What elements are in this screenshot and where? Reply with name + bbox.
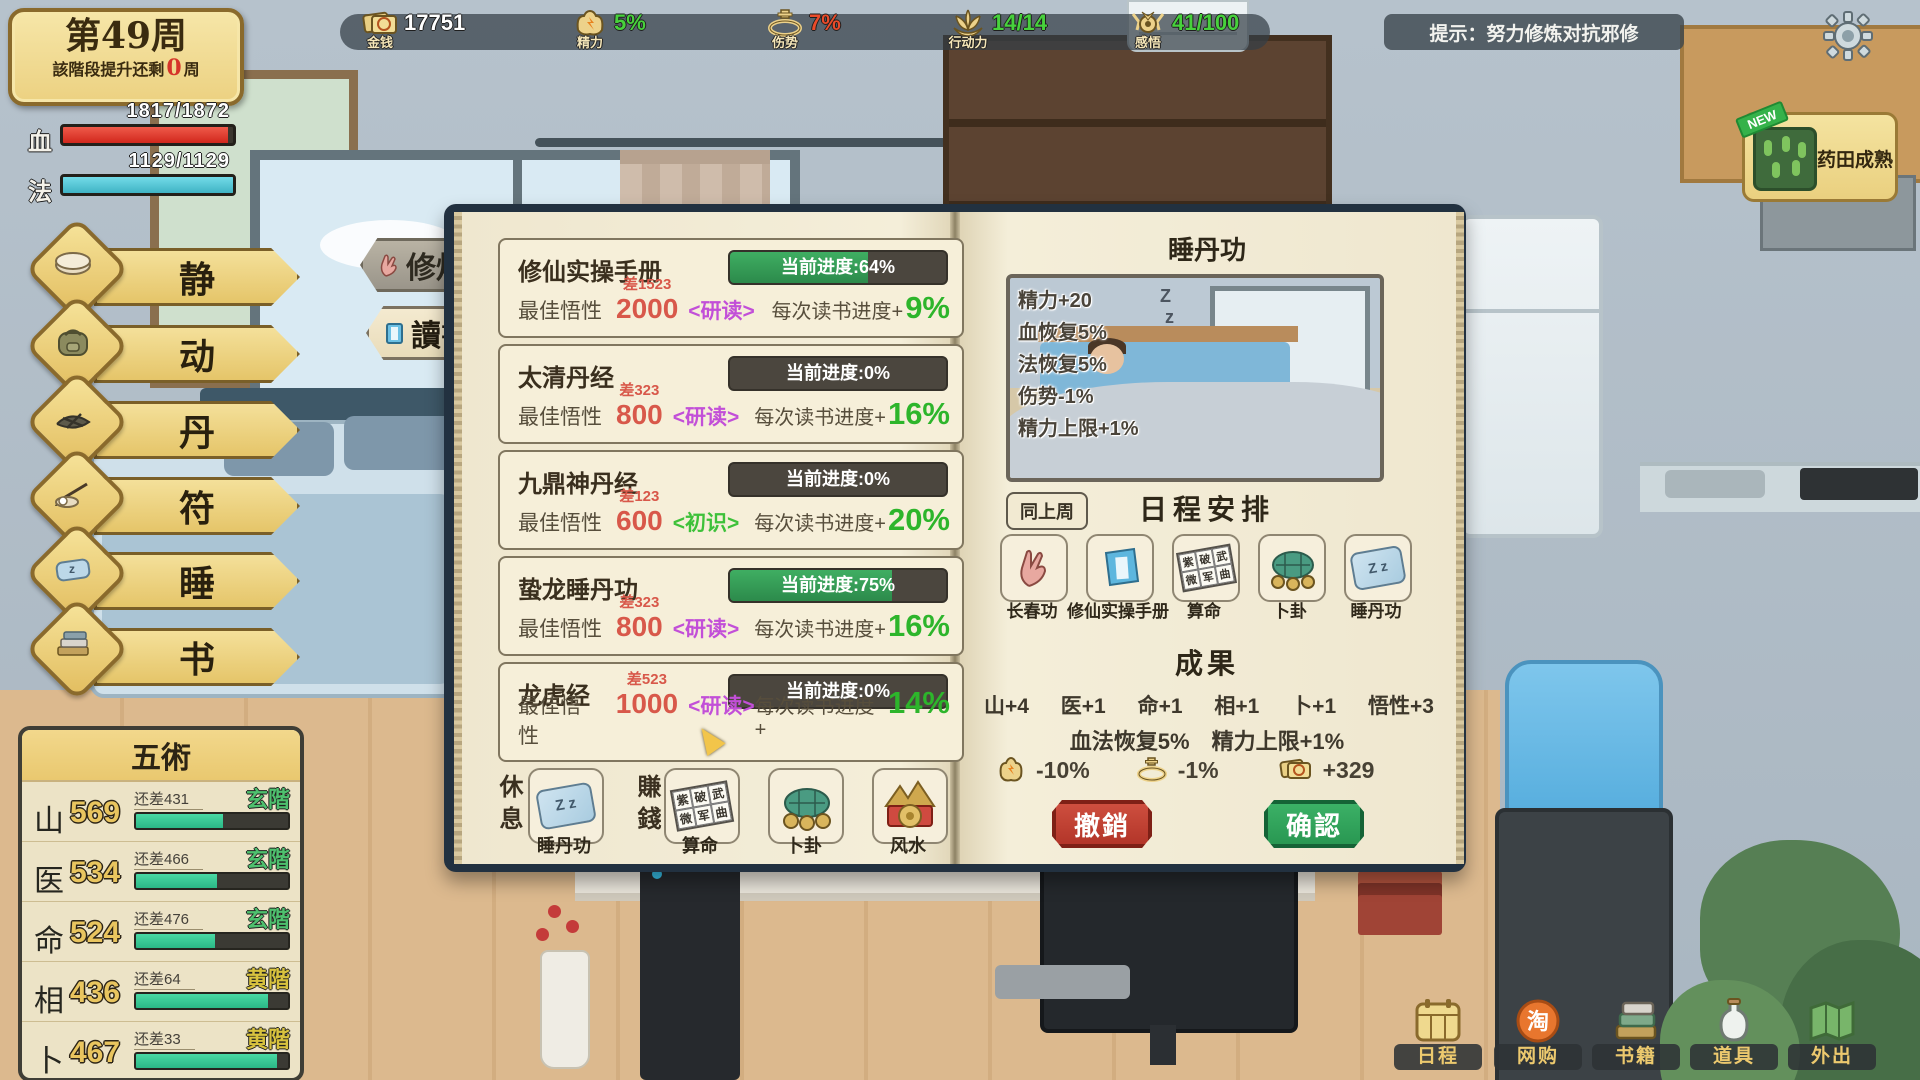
results-bonus: 血法恢复5% 精力上限+1%: [958, 724, 1456, 756]
activity-label: 风水: [853, 832, 963, 858]
stove: [1800, 468, 1918, 500]
keyboard: [995, 965, 1130, 999]
dock-items-button[interactable]: 道具: [1696, 1000, 1772, 1070]
gain-item: 医+1: [1061, 690, 1106, 720]
books-icon: [1610, 998, 1662, 1044]
cost-injury: -1%: [1178, 757, 1219, 784]
action-icon: 行动力: [948, 6, 988, 40]
hand-icon: [1017, 546, 1051, 590]
gain-value: 20%: [888, 502, 950, 538]
gain-label: 每次读书进度+: [754, 613, 886, 642]
herbs-icon: [50, 395, 96, 441]
gain-item: 卜+1: [1291, 690, 1336, 720]
svg-text:z: z: [69, 562, 75, 576]
book-entry[interactable]: 修仙实操手册 当前进度:64% 最佳悟性 差15232000 <研读> 每次读书…: [498, 238, 964, 338]
five-arts-row-divination: 卜 467 还差33 黄階: [22, 1022, 300, 1080]
aptitude-diff: 差1523: [623, 273, 671, 294]
five-arts-row-medicine: 医 534 还差466 玄階: [22, 842, 300, 902]
gear-icon: [1822, 10, 1874, 62]
book-progress: 当前进度:0%: [728, 674, 948, 709]
art-char: 卜: [34, 1036, 64, 1080]
gain-item: 山+4: [984, 690, 1029, 720]
art-remaining: 还差476: [134, 908, 203, 930]
aptitude-diff: 差123: [619, 485, 659, 506]
action-value: 14/14: [992, 10, 1047, 36]
aptitude-value: 1000: [616, 688, 678, 719]
art-tier: 黄階: [246, 1022, 290, 1054]
art-value: 436: [70, 976, 120, 1010]
sidebar-label: 动: [179, 328, 215, 380]
effect-line: 精力上限+1%: [1018, 412, 1139, 441]
effect-line: 精力+20: [1018, 284, 1092, 313]
injury-icon: [1136, 757, 1168, 783]
five-arts-row-fate: 命 524 还差476 玄階: [22, 902, 300, 962]
fengshui-icon: [882, 780, 938, 832]
gain-item: 悟性+3: [1368, 690, 1434, 720]
sidebar-label: 静: [179, 251, 215, 303]
aptitude-diff: 差323: [619, 591, 659, 612]
dock-label: 网购: [1494, 1044, 1582, 1070]
turtle-icon: [777, 781, 835, 831]
insight-icon: 感悟: [1128, 6, 1168, 40]
injury-value: 7%: [809, 10, 841, 36]
svg-text:淘: 淘: [1527, 1009, 1549, 1034]
pillow-icon: Z z: [1349, 545, 1407, 591]
art-char: 命: [34, 916, 64, 960]
art-progress-bar: [134, 812, 290, 830]
book-progress: 当前进度:64%: [728, 250, 948, 285]
money-icon: [1279, 757, 1313, 783]
earn-label: 賺錢: [630, 774, 665, 838]
stamina-resource: 精力 5%: [570, 6, 646, 40]
art-value: 467: [70, 1036, 120, 1070]
book-progress: 当前进度:0%: [728, 356, 948, 391]
aptitude-value: 800: [616, 399, 663, 430]
hand-icon: [378, 252, 400, 278]
settings-button[interactable]: [1822, 10, 1874, 62]
aptitude-value: 600: [616, 505, 663, 536]
aptitude-label: 最佳悟性: [518, 295, 602, 325]
art-tier: 玄階: [246, 782, 290, 814]
sidebar-item-book[interactable]: 书: [36, 610, 296, 696]
aptitude-value: 800: [616, 611, 663, 642]
dock-label: 书籍: [1592, 1044, 1680, 1070]
confirm-button[interactable]: 确認: [1264, 800, 1364, 848]
art-progress-bar: [134, 872, 290, 890]
gain-item: 命+1: [1138, 690, 1183, 720]
farm-ready-alert[interactable]: NEW 药田成熟: [1742, 112, 1898, 202]
gain-value: 16%: [888, 396, 950, 432]
art-remaining: 还差64: [134, 968, 195, 990]
herb-field-icon: [1753, 127, 1817, 191]
art-char: 医: [34, 856, 64, 900]
detail-title: 睡丹功: [958, 230, 1456, 267]
water-cooler-bottle: [1505, 660, 1663, 818]
read-mode-tag[interactable]: <初识>: [673, 507, 740, 537]
art-value: 534: [70, 856, 120, 890]
stamina-value: 5%: [614, 10, 646, 36]
activity-label: 算命: [645, 832, 755, 858]
art-tier: 玄階: [246, 902, 290, 934]
fortune-grid-icon: 紫破武 微军曲: [1175, 544, 1236, 593]
pc-tower: [640, 855, 740, 1080]
money-resource: 金钱 17751: [360, 6, 465, 40]
blood-value: 1817/1872: [60, 100, 230, 123]
schedule-book: 修仙实操手册 当前进度:64% 最佳悟性 差15232000 <研读> 每次读书…: [444, 204, 1466, 872]
money-value: 17751: [404, 10, 465, 36]
art-remaining: 还差466: [134, 848, 203, 870]
dock-go-out-button[interactable]: 外出: [1794, 1000, 1870, 1070]
five-arts-row-physiognomy: 相 436 还差64 黄階: [22, 962, 300, 1022]
art-tier: 玄階: [246, 842, 290, 874]
art-value: 524: [70, 916, 120, 950]
insight-resource: 感悟 41/100: [1128, 6, 1239, 40]
art-progress-bar: [134, 992, 290, 1010]
book-entry[interactable]: 龙虎经 当前进度:0% 最佳悟性 差5231000 <研读> 每次读书进度+ 1…: [498, 662, 964, 762]
dock-schedule-button[interactable]: 日程: [1400, 1000, 1476, 1070]
backpack-icon: [50, 319, 96, 365]
five-arts-title: 五術: [22, 730, 300, 782]
week-badge: 第49周 該階段提升还剩0周: [8, 8, 244, 106]
gain-label: 每次读书进度+: [754, 507, 886, 536]
insight-value: 41/100: [1172, 10, 1239, 36]
sidebar-label: 睡: [179, 555, 215, 607]
read-mode-tag[interactable]: <研读>: [688, 295, 755, 325]
dock-shop-button[interactable]: 淘 网购: [1500, 1000, 1576, 1070]
schedule-title: 日程安排: [958, 488, 1456, 528]
results-title: 成果: [958, 642, 1456, 682]
kitchen-sink: [1665, 470, 1765, 498]
book-entry[interactable]: 太清丹经 当前进度:0% 最佳悟性 差323800 <研读> 每次读书进度+ 1…: [498, 344, 964, 444]
sidebar-label: 符: [179, 480, 215, 532]
aptitude-diff: 差523: [627, 668, 667, 689]
week-sub-prefix: 該階段提升还剩: [52, 60, 164, 79]
sidebar-label: 书: [179, 631, 215, 683]
five-arts-panel: 五術 山 569 还差431 玄階 医 534 还差466 玄階 命 524 还…: [18, 726, 304, 1080]
dock-label: 日程: [1394, 1044, 1482, 1070]
calendar-icon: [1412, 998, 1464, 1044]
art-progress-bar: [134, 932, 290, 950]
turtle-icon: [1265, 545, 1319, 591]
art-tier: 黄階: [246, 962, 290, 994]
taobao-icon: 淘: [1512, 998, 1564, 1044]
activity-label: 睡丹功: [509, 832, 619, 858]
aptitude-label: 最佳悟性: [518, 401, 602, 431]
injury-icon: 伤势: [765, 6, 805, 40]
bottle-icon: [1708, 998, 1760, 1044]
map-icon: [1806, 998, 1858, 1044]
gain-label: 每次读书进度+: [772, 295, 904, 324]
injury-resource: 伤势 7%: [765, 6, 841, 40]
cost-stamina: -10%: [1036, 757, 1090, 784]
schedule-slot-label: 睡丹功: [1321, 602, 1431, 621]
mana-label: 法: [28, 172, 52, 207]
results-gains: 山+4 医+1 命+1 相+1 卜+1 悟性+3: [984, 690, 1434, 720]
activity-label: 卜卦: [749, 832, 859, 858]
art-char: 山: [34, 796, 64, 840]
hint-text: 提示：努力修炼对抗邪修: [1429, 19, 1638, 46]
flower-vase: [540, 950, 590, 1069]
book-progress: 当前进度:0%: [728, 462, 948, 497]
gain-money: +329: [1323, 757, 1375, 784]
farm-ready-label: 药田成熟: [1817, 145, 1893, 172]
desk-books: [1358, 895, 1442, 935]
aptitude-label: 最佳悟性: [518, 690, 602, 750]
sidebar-label: 丹: [179, 404, 215, 456]
mana-value: 1129/1129: [60, 150, 230, 173]
effect-line: 血恢复5%: [1018, 316, 1107, 345]
action-resource: 行动力 14/14: [948, 6, 1047, 40]
dock-label: 道具: [1690, 1044, 1778, 1070]
art-value: 569: [70, 796, 120, 830]
mana-bar: [60, 174, 236, 196]
results-costs: -10% -1% +329: [996, 756, 1426, 784]
game-screen: 第49周 該階段提升还剩0周 1817/1872 血 1129/1129 法 金…: [0, 0, 1920, 1080]
book-icon: [385, 321, 405, 345]
hint-banner: 提示：努力修炼对抗邪修: [1384, 14, 1684, 50]
gain-label: 每次读书进度+: [754, 401, 886, 430]
blood-bar: [60, 124, 236, 146]
gain-value: 9%: [905, 290, 950, 326]
book-entry[interactable]: 蛰龙睡丹功 当前进度:75% 最佳悟性 差323800 <研读> 每次读书进度+…: [498, 556, 964, 656]
stamina-icon: [996, 756, 1026, 784]
pillow-icon: Z z: [535, 781, 597, 830]
effect-line: 伤势-1%: [1018, 380, 1094, 409]
read-mode-tag[interactable]: <研读>: [673, 401, 740, 431]
cushion-icon: [50, 242, 96, 288]
art-progress-bar: [134, 1052, 290, 1070]
pillow-icon: z: [50, 546, 96, 592]
schedule-slot-fortune[interactable]: 紫破武 微军曲: [1172, 534, 1240, 602]
blood-label: 血: [28, 122, 52, 157]
art-remaining: 还差33: [134, 1028, 195, 1050]
schedule-slot-divination[interactable]: [1258, 534, 1326, 602]
week-title: 第49周: [12, 14, 240, 58]
effect-line: 法恢复5%: [1018, 348, 1107, 377]
gain-item: 相+1: [1214, 690, 1259, 720]
aptitude-label: 最佳悟性: [518, 507, 602, 537]
undo-button[interactable]: 撤銷: [1052, 800, 1152, 848]
week-sub-suffix: 周: [184, 60, 200, 79]
books-icon: [50, 622, 96, 668]
schedule-slot-manual[interactable]: [1086, 534, 1154, 602]
stamina-icon: 精力: [570, 6, 610, 40]
monitor-stand: [1150, 1025, 1176, 1065]
art-remaining: 还差431: [134, 788, 203, 810]
aptitude-value: 2000: [616, 293, 678, 324]
monitor: [1040, 857, 1298, 1033]
schedule-slot-changchun[interactable]: [1000, 534, 1068, 602]
aptitude-diff: 差323: [619, 379, 659, 400]
book-icon: [1100, 545, 1140, 591]
dock-books-button[interactable]: 书籍: [1598, 1000, 1674, 1070]
book-progress: 当前进度:75%: [728, 568, 948, 603]
week-sub-value: 0: [164, 55, 183, 81]
read-mode-tag[interactable]: <研读>: [673, 613, 740, 643]
art-char: 相: [34, 976, 64, 1020]
dock-label: 外出: [1788, 1044, 1876, 1070]
five-arts-row-mountain: 山 569 还差431 玄階: [22, 782, 300, 842]
rest-label: 休息: [492, 774, 527, 838]
gain-value: 16%: [888, 608, 950, 644]
schedule-slot-sleep[interactable]: Z z: [1344, 534, 1412, 602]
book-entry[interactable]: 九鼎神丹经 当前进度:0% 最佳悟性 差123600 <初识> 每次读书进度+ …: [498, 450, 964, 550]
brush-icon: [50, 471, 96, 517]
aptitude-label: 最佳悟性: [518, 613, 602, 643]
book-title: 太清丹经: [518, 358, 614, 393]
money-icon: 金钱: [360, 6, 400, 40]
fortune-grid-icon: 紫破武 微军曲: [670, 780, 734, 831]
fridge: [1460, 215, 1603, 538]
